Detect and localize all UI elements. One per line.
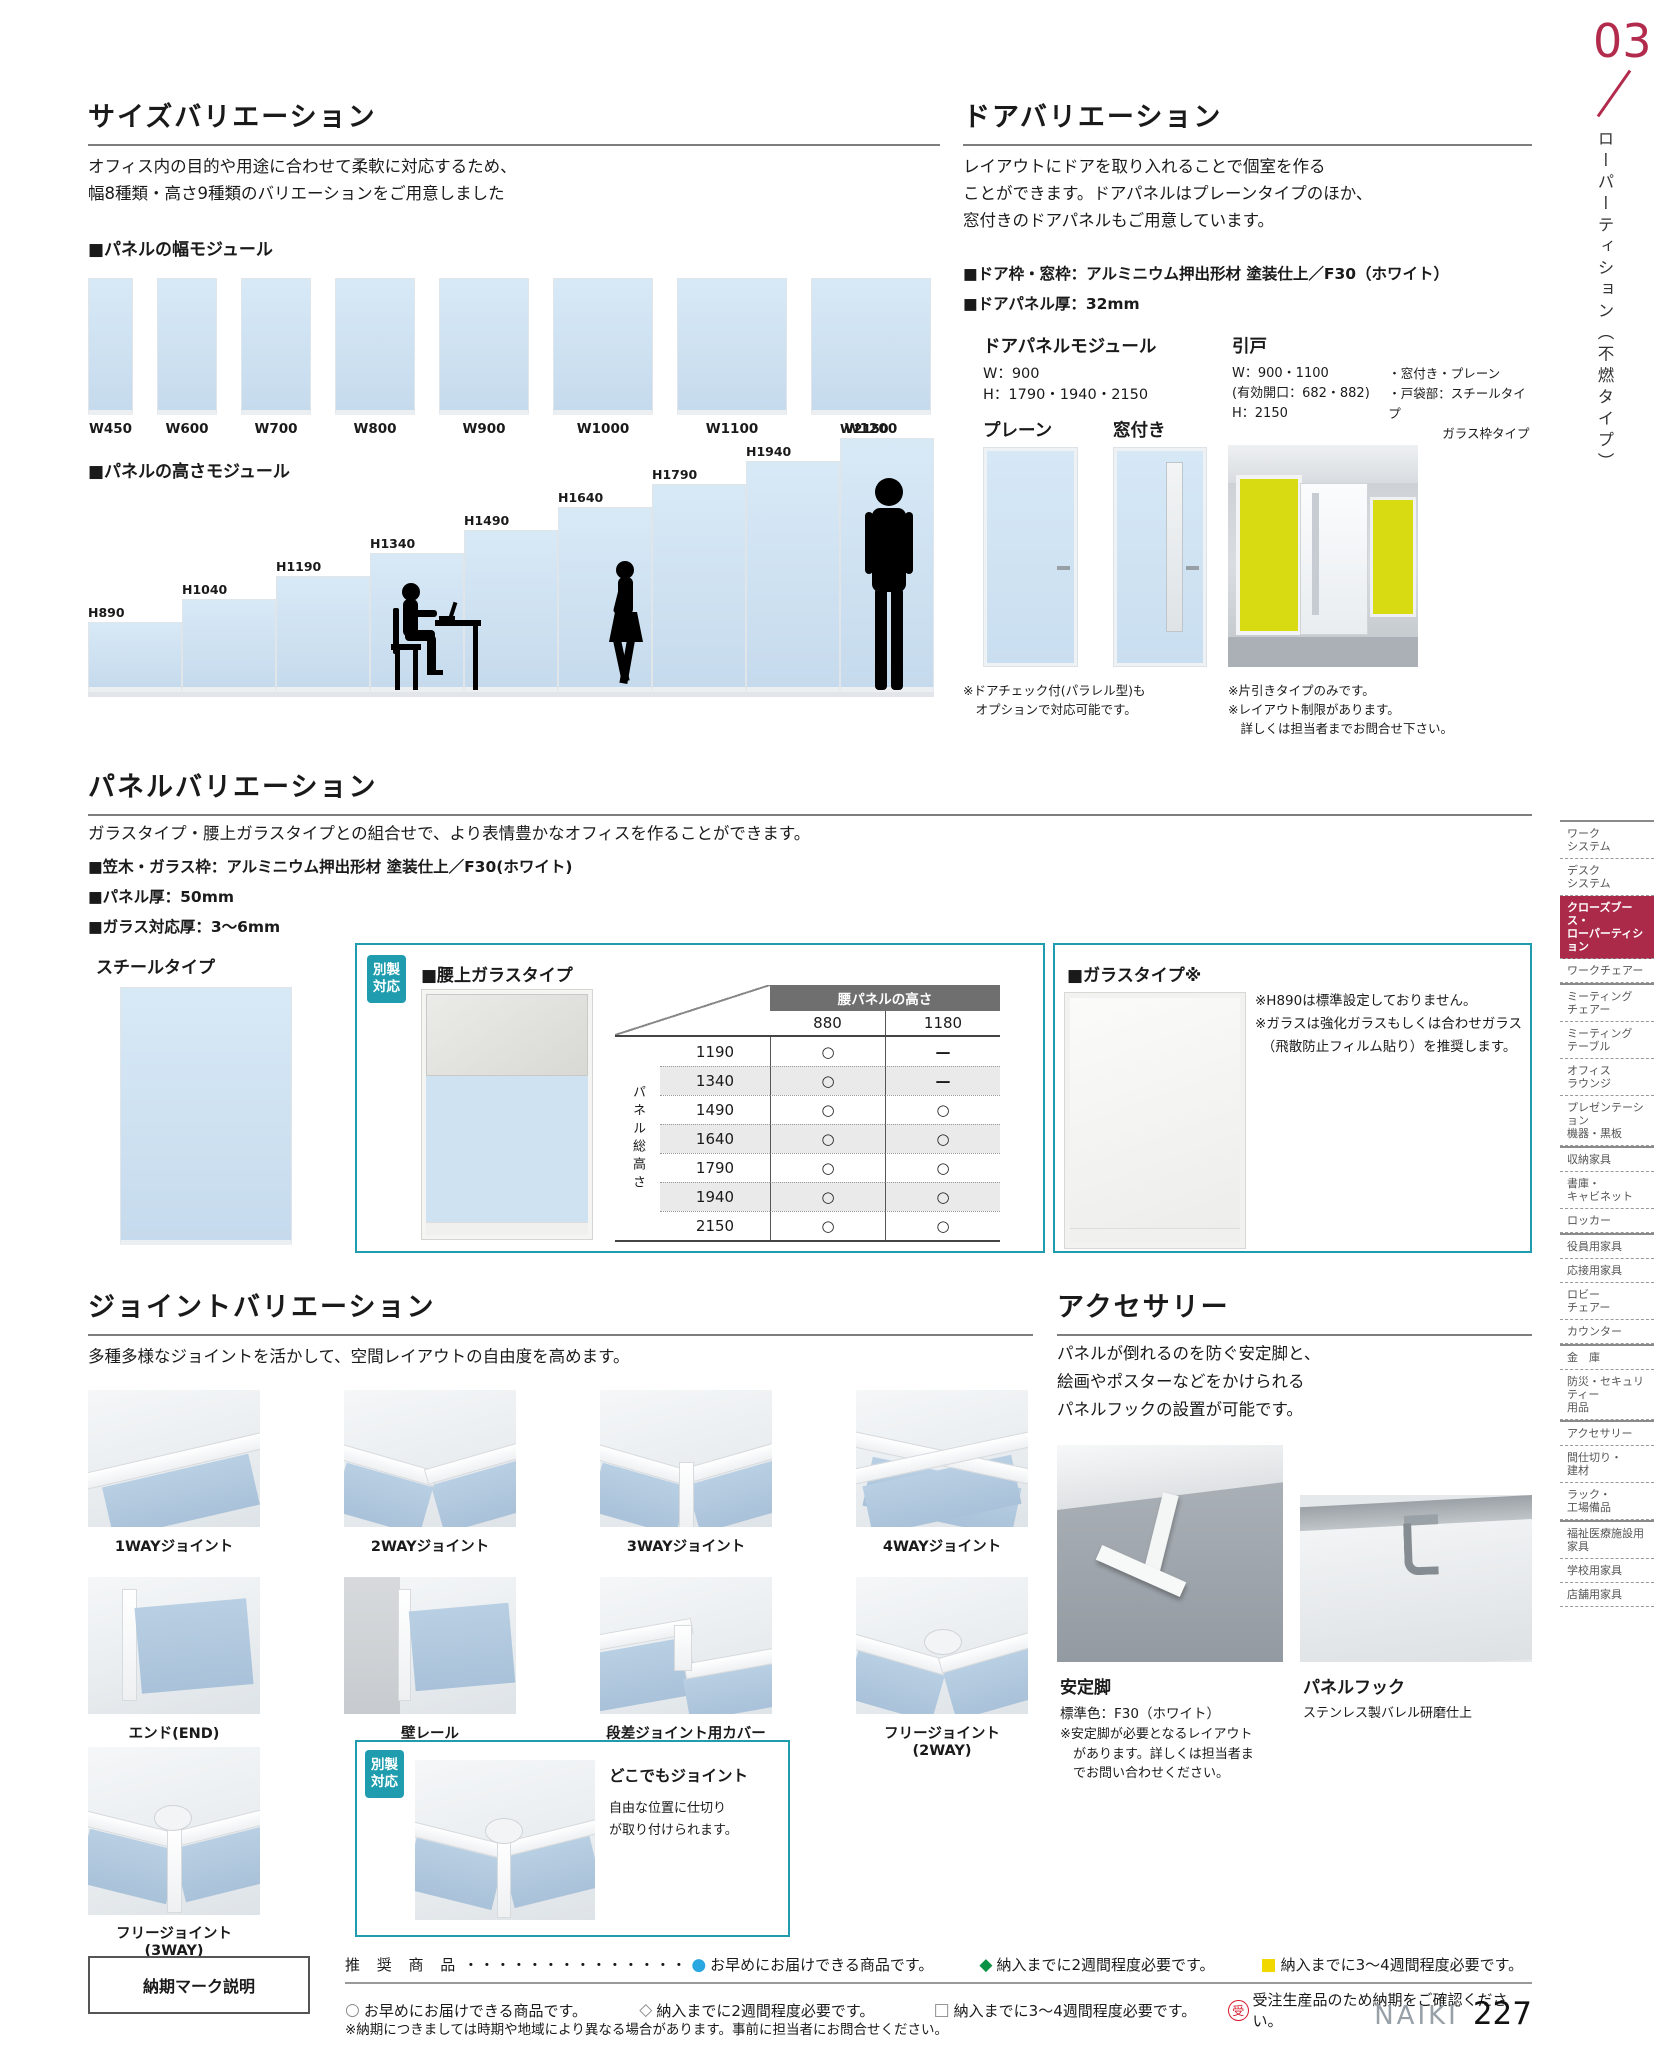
sliding-door-leaf <box>1300 483 1368 635</box>
blue-circle-icon: ● <box>691 1955 706 1975</box>
sidebar-item-meeting-chair[interactable]: ミーティング チェアー <box>1560 983 1654 1022</box>
chapter-slash <box>1597 70 1632 118</box>
legend-text: 納入までに3～4週間程度必要です。 <box>1281 1954 1524 1975</box>
legend-text: 納入までに2週間程度必要です。 <box>996 1954 1214 1975</box>
door-spec-thickness: ■ドアパネル厚：32mm <box>963 293 1140 315</box>
panel-w900 <box>439 278 529 415</box>
sidebar-item-storage[interactable]: 収納家具 <box>1560 1146 1654 1172</box>
table-diagonal-cell <box>615 985 770 1037</box>
legend-text: お早めにお届けできる商品です。 <box>710 1954 933 1975</box>
table-mark: — <box>885 1037 1000 1066</box>
legend-divider <box>345 1982 1532 1984</box>
category-sidebar: ワーク システム デスク システム クローズブース・ ローパーティション ワーク… <box>1560 820 1654 1607</box>
joint-image-4way <box>856 1390 1028 1527</box>
delivery-mark-box: 納期マーク説明 <box>88 1956 310 2014</box>
door-panel-module: ドアパネルモジュール W：900 H：1790・1940・2150 <box>983 333 1156 406</box>
delivery-note: ※納期につきましては時期や地域により異なる場合があります。事前に担当者にお問合せ… <box>345 2018 948 2038</box>
steel-panel-image <box>120 987 292 1245</box>
sliding-door-spec-right: ・窓付き・プレーン ・戸袋部：スチールタイプ ガラス枠タイプ <box>1388 364 1532 444</box>
joint-image-1way <box>88 1390 260 1527</box>
sidebar-item-locker[interactable]: ロッカー <box>1560 1209 1654 1233</box>
table-row-header: パネル総高さ <box>615 1037 660 1240</box>
panel-hook-desc: ステンレス製バレル研磨仕上 <box>1303 1702 1472 1721</box>
height-label: H1340 <box>370 536 464 551</box>
delivery-legend-footer: 納期マーク説明 推 奨 商 品 ・・・・・・・・・・・・・・ ●お早めにお届けで… <box>88 1952 1532 2044</box>
custom-order-badge: 別製 対応 <box>367 955 406 1003</box>
door-note-right: ※片引きタイプのみです。 ※レイアウト制限があります。 詳しくは担当者までお問合… <box>1228 681 1453 738</box>
joint-variation-desc: 多種多様なジョイントを活かして、空間レイアウトの自由度を高めます。 <box>88 1343 630 1370</box>
glass-panel-image <box>1065 993 1245 1248</box>
table-mark: ○ <box>770 1182 885 1211</box>
brand-page-number: NAIKI 227 <box>1374 1996 1532 2032</box>
joint-variation-title: ジョイントバリエーション <box>88 1285 1033 1336</box>
door-handle <box>1186 566 1199 570</box>
walking-woman-silhouette <box>593 560 655 692</box>
glass-type-notes: ※H890は標準設定しておりません。 ※ガラスは強化ガラスもしくは合わせガラス … <box>1255 990 1522 1059</box>
green-diamond-icon: ◆ <box>979 1955 992 1975</box>
table-height: 1790 <box>660 1153 770 1182</box>
panel-h1940 <box>746 461 840 692</box>
standing-man-silhouette <box>858 476 920 692</box>
table-height: 1490 <box>660 1095 770 1124</box>
panel-w1200 <box>811 278 931 415</box>
sidebar-item-security[interactable]: 防災・セキュリティー 用品 <box>1560 1370 1654 1420</box>
sidebar-item-work-system[interactable]: ワーク システム <box>1560 820 1654 859</box>
recommended-label: 推 奨 商 品 <box>345 1954 461 1975</box>
accessories-section: アクセサリー パネルが倒れるのを防ぐ安定脚と、 絵画やポスターなどをかけられる … <box>1057 1285 1532 1875</box>
panel-w450 <box>88 278 133 415</box>
frosted-glass-top <box>426 994 588 1076</box>
size-variation-desc: オフィス内の目的や用途に合わせて柔軟に対応するため、 幅8種類・高さ9種類のバリ… <box>88 153 517 207</box>
table-col-880: 880 <box>770 1011 885 1037</box>
sidebar-item-closed-booth-low-partition[interactable]: クローズブース・ ローパーティション <box>1560 896 1654 959</box>
panel-w800 <box>335 278 415 415</box>
table-mark: — <box>885 1066 1000 1095</box>
panel-hook-photo <box>1300 1495 1532 1662</box>
panel-h1040 <box>182 599 276 692</box>
foot-upright <box>1143 1492 1178 1575</box>
plain-door-label: プレーン <box>983 417 1052 442</box>
table-height: 1340 <box>660 1066 770 1095</box>
dokodemo-joint-image <box>415 1760 595 1920</box>
joint-image-free-2way <box>856 1577 1028 1714</box>
stabilizer-foot-photo <box>1057 1445 1283 1662</box>
yellow-panel-left <box>1236 475 1302 635</box>
joint-image-free-3way <box>88 1747 260 1915</box>
joint-label: 3WAYジョイント <box>600 1535 772 1556</box>
panel-base <box>1070 1228 1240 1243</box>
table-mark: ○ <box>885 1095 1000 1124</box>
panel-spec-glass: ■ガラス対応厚：3～6mm <box>88 915 280 939</box>
sidebar-item-counter[interactable]: カウンター <box>1560 1320 1654 1344</box>
sidebar-item-shop[interactable]: 店舗用家具 <box>1560 1583 1654 1607</box>
panel-variation-desc: ガラスタイプ・腰上ガラスタイプとの組合せで、より表情豊かなオフィスを作ることがで… <box>88 820 810 847</box>
panel-variation-section: パネルバリエーション ガラスタイプ・腰上ガラスタイプとの組合せで、より表情豊かな… <box>88 765 1532 1265</box>
panel-w1100 <box>677 278 787 415</box>
height-module-diagram: H890 H1040 H1190 H1340 H1490 H1640 H1790… <box>88 425 934 697</box>
table-mark: ○ <box>885 1153 1000 1182</box>
sliding-door-title: 引戸 <box>1232 333 1532 358</box>
table-mark: ○ <box>885 1182 1000 1211</box>
panel-spec-frame: ■笠木・ガラス枠：アルミニウム押出形材 塗装仕上／F30(ホワイト) <box>88 855 572 879</box>
joint-label: 4WAYジョイント <box>856 1535 1028 1556</box>
sidebar-item-partition-materials[interactable]: 間仕切り・ 建材 <box>1560 1446 1654 1483</box>
joint-label: 2WAYジョイント <box>344 1535 516 1556</box>
height-label: H890 <box>88 605 182 620</box>
page-number: 227 <box>1473 1996 1532 2032</box>
sidebar-item-desk-system[interactable]: デスク システム <box>1560 859 1654 896</box>
sidebar-item-welfare-medical[interactable]: 福祉医療施設用 家具 <box>1560 1520 1654 1559</box>
door-panel-module-title: ドアパネルモジュール <box>983 333 1156 358</box>
photo-floor <box>1228 637 1418 667</box>
waist-glass-panel-image <box>422 990 592 1239</box>
sliding-door-spec-left: W：900・1100 (有効開口：682・882) H：2150 <box>1232 364 1388 444</box>
sidebar-item-work-chair[interactable]: ワークチェアー <box>1560 959 1654 983</box>
sidebar-item-cabinet[interactable]: 書庫・ キャビネット <box>1560 1172 1654 1209</box>
table-mark: ○ <box>770 1124 885 1153</box>
glass-type-title: ■ガラスタイプ※ <box>1067 961 1201 986</box>
height-label: W2150 <box>840 421 934 436</box>
gray-square-icon: □ <box>934 2000 950 2020</box>
leader-dots: ・・・・・・・・・・・・・・ <box>463 1954 687 1975</box>
sidebar-item-meeting-table[interactable]: ミーティング テーブル <box>1560 1022 1654 1059</box>
table-mark: ○ <box>770 1211 885 1240</box>
door-variation-title: ドアバリエーション <box>963 95 1532 146</box>
window-door-label: 窓付き <box>1113 417 1166 442</box>
panel-spec-thickness: ■パネル厚：50mm <box>88 885 234 909</box>
dokodemo-joint-desc: 自由な位置に仕切り が取り付けられます。 <box>609 1798 738 1842</box>
gray-circle-icon: ○ <box>345 2000 360 2020</box>
waist-glass-box: 別製 対応 ■腰上ガラスタイプ 腰パネルの高さ 880 1180 パネル総高さ … <box>355 943 1045 1253</box>
width-module-label: ■パネルの幅モジュール <box>88 235 273 260</box>
joint-label: エンド(END) <box>88 1722 260 1743</box>
table-mark: ○ <box>885 1124 1000 1153</box>
sidebar-item-safe[interactable]: 金 庫 <box>1560 1344 1654 1370</box>
brand-logo: NAIKI <box>1374 2001 1459 2031</box>
window-door-image <box>1113 447 1207 667</box>
joint-image-end <box>88 1577 260 1714</box>
door-window-slit <box>1312 493 1319 615</box>
height-label: H1490 <box>464 513 558 528</box>
accessories-title: アクセサリー <box>1057 1285 1532 1336</box>
sidebar-item-school[interactable]: 学校用家具 <box>1560 1559 1654 1583</box>
legend-text: 納入までに3～4週間程度必要です。 <box>954 2000 1197 2021</box>
size-variation-title: サイズバリエーション <box>88 95 940 146</box>
height-label: H1790 <box>652 467 746 482</box>
panel-w700 <box>241 278 311 415</box>
dokodemo-joint-title: どこでもジョイント <box>609 1764 748 1786</box>
sidebar-item-rack-factory[interactable]: ラック・ 工場備品 <box>1560 1483 1654 1520</box>
height-label: H1190 <box>276 559 370 574</box>
size-variation-section: サイズバリエーション オフィス内の目的や用途に合わせて柔軟に対応するため、 幅8… <box>88 95 940 146</box>
panel-h1190 <box>276 576 370 692</box>
plain-door-image <box>983 447 1078 667</box>
joint-label: 1WAYジョイント <box>88 1535 260 1556</box>
sidebar-item-presentation[interactable]: プレゼンテーション 機器・黒板 <box>1560 1096 1654 1146</box>
table-height: 1940 <box>660 1182 770 1211</box>
accessories-desc: パネルが倒れるのを防ぐ安定脚と、 絵画やポスターなどをかけられる パネルフックの… <box>1057 1340 1320 1424</box>
waist-glass-title: ■腰上ガラスタイプ <box>421 961 573 986</box>
table-height: 2150 <box>660 1211 770 1240</box>
joint-image-2way <box>344 1390 516 1527</box>
panel-h890 <box>88 622 182 692</box>
dokodemo-joint-box: 別製 対応 どこでもジョイント 自由な位置に仕切り が取り付けられます。 <box>355 1740 790 1937</box>
door-handle <box>1057 566 1070 570</box>
joint-image-step-cover <box>600 1577 772 1714</box>
sliding-door-photo <box>1228 445 1418 667</box>
table-mark: ○ <box>770 1037 885 1066</box>
joint-label: フリージョイント(2WAY) <box>856 1722 1028 1759</box>
door-spec-frame: ■ドア枠・窓枠：アルミニウム押出形材 塗装仕上／F30（ホワイト） <box>963 263 1449 285</box>
table-group-header: 腰パネルの高さ <box>770 985 1000 1011</box>
table-height: 1190 <box>660 1037 770 1066</box>
sidebar-item-office-lounge[interactable]: オフィス ラウンジ <box>1560 1059 1654 1096</box>
table-mark: ○ <box>885 1211 1000 1240</box>
panel-hook-title: パネルフック <box>1303 1673 1405 1698</box>
table-col-1180: 1180 <box>885 1011 1000 1037</box>
yellow-panel-right <box>1370 497 1416 617</box>
table-mark: ○ <box>770 1066 885 1095</box>
sliding-door-module: 引戸 W：900・1100 (有効開口：682・882) H：2150 ・窓付き… <box>1232 333 1532 444</box>
gray-diamond-icon: ◇ <box>639 2000 652 2020</box>
table-mark: ○ <box>770 1095 885 1124</box>
panel-base <box>426 1222 588 1235</box>
stabilizer-notes: ※安定脚が必要となるレイアウト があります。詳しくは担当者ま でお問い合わせくだ… <box>1060 1725 1254 1784</box>
sidebar-item-lobby-chair[interactable]: ロビー チェアー <box>1560 1283 1654 1320</box>
glass-type-box: ■ガラスタイプ※ ※H890は標準設定しておりません。 ※ガラスは強化ガラスもし… <box>1053 943 1532 1253</box>
custom-order-badge: 別製 対応 <box>365 1750 404 1798</box>
table-height: 1640 <box>660 1124 770 1153</box>
width-module-diagram: W450 W600 W700 W800 W900 W1000 W1100 W12… <box>88 278 931 437</box>
chapter-number: 03 <box>1593 14 1652 68</box>
delivery-legend-line1: 推 奨 商 品 ・・・・・・・・・・・・・・ ●お早めにお届けできる商品です。 … <box>345 1954 1523 1975</box>
door-note-left: ※ドアチェック付(パラレル型)も オプションで対応可能です。 <box>963 681 1145 719</box>
door-variation-section: ドアバリエーション レイアウトにドアを取り入れることで個室を作る ことができます… <box>963 95 1532 775</box>
hook-curve <box>1403 1522 1439 1575</box>
joint-variation-section: ジョイントバリエーション 多種多様なジョイントを活かして、空間レイアウトの自由度… <box>88 1285 1033 1975</box>
sidebar-item-executive[interactable]: 役員用家具 <box>1560 1233 1654 1259</box>
yellow-square-icon: ■ <box>1261 1955 1277 1975</box>
steel-type-label: スチールタイプ <box>96 953 215 978</box>
chapter-title: ローパーティション（不燃タイプ） <box>1592 130 1616 590</box>
sidebar-item-reception[interactable]: 応接用家具 <box>1560 1259 1654 1283</box>
door-window-slot <box>1166 462 1183 632</box>
height-label: H1040 <box>182 582 276 597</box>
panel-variation-title: パネルバリエーション <box>88 765 1532 816</box>
panel-w1000 <box>553 278 653 415</box>
foot-base <box>1096 1545 1187 1597</box>
joint-image-wall-rail <box>344 1577 516 1714</box>
table-mark: ○ <box>770 1153 885 1182</box>
stabilizer-color: 標準色：F30（ホワイト） <box>1060 1702 1220 1722</box>
door-variation-desc: レイアウトにドアを取り入れることで個室を作る ことができます。ドアパネルはプレー… <box>963 153 1372 234</box>
sidebar-item-accessory[interactable]: アクセサリー <box>1560 1420 1654 1446</box>
blue-lower-panel <box>426 1076 588 1222</box>
door-panel-module-spec: W：900 H：1790・1940・2150 <box>983 364 1156 406</box>
height-label: H1940 <box>746 444 840 459</box>
floor-line <box>88 692 934 697</box>
made-to-order-icon: 受 <box>1228 2000 1249 2021</box>
panel-w600 <box>157 278 217 415</box>
waist-panel-height-table: 腰パネルの高さ 880 1180 パネル総高さ 1190 ○ — 1340 ○ … <box>615 985 1000 1242</box>
seated-person-silhouette <box>373 580 483 692</box>
stabilizer-title: 安定脚 <box>1060 1673 1111 1698</box>
panel-h1790 <box>652 484 746 692</box>
joint-image-3way <box>600 1390 772 1527</box>
height-label: H1640 <box>558 490 652 505</box>
